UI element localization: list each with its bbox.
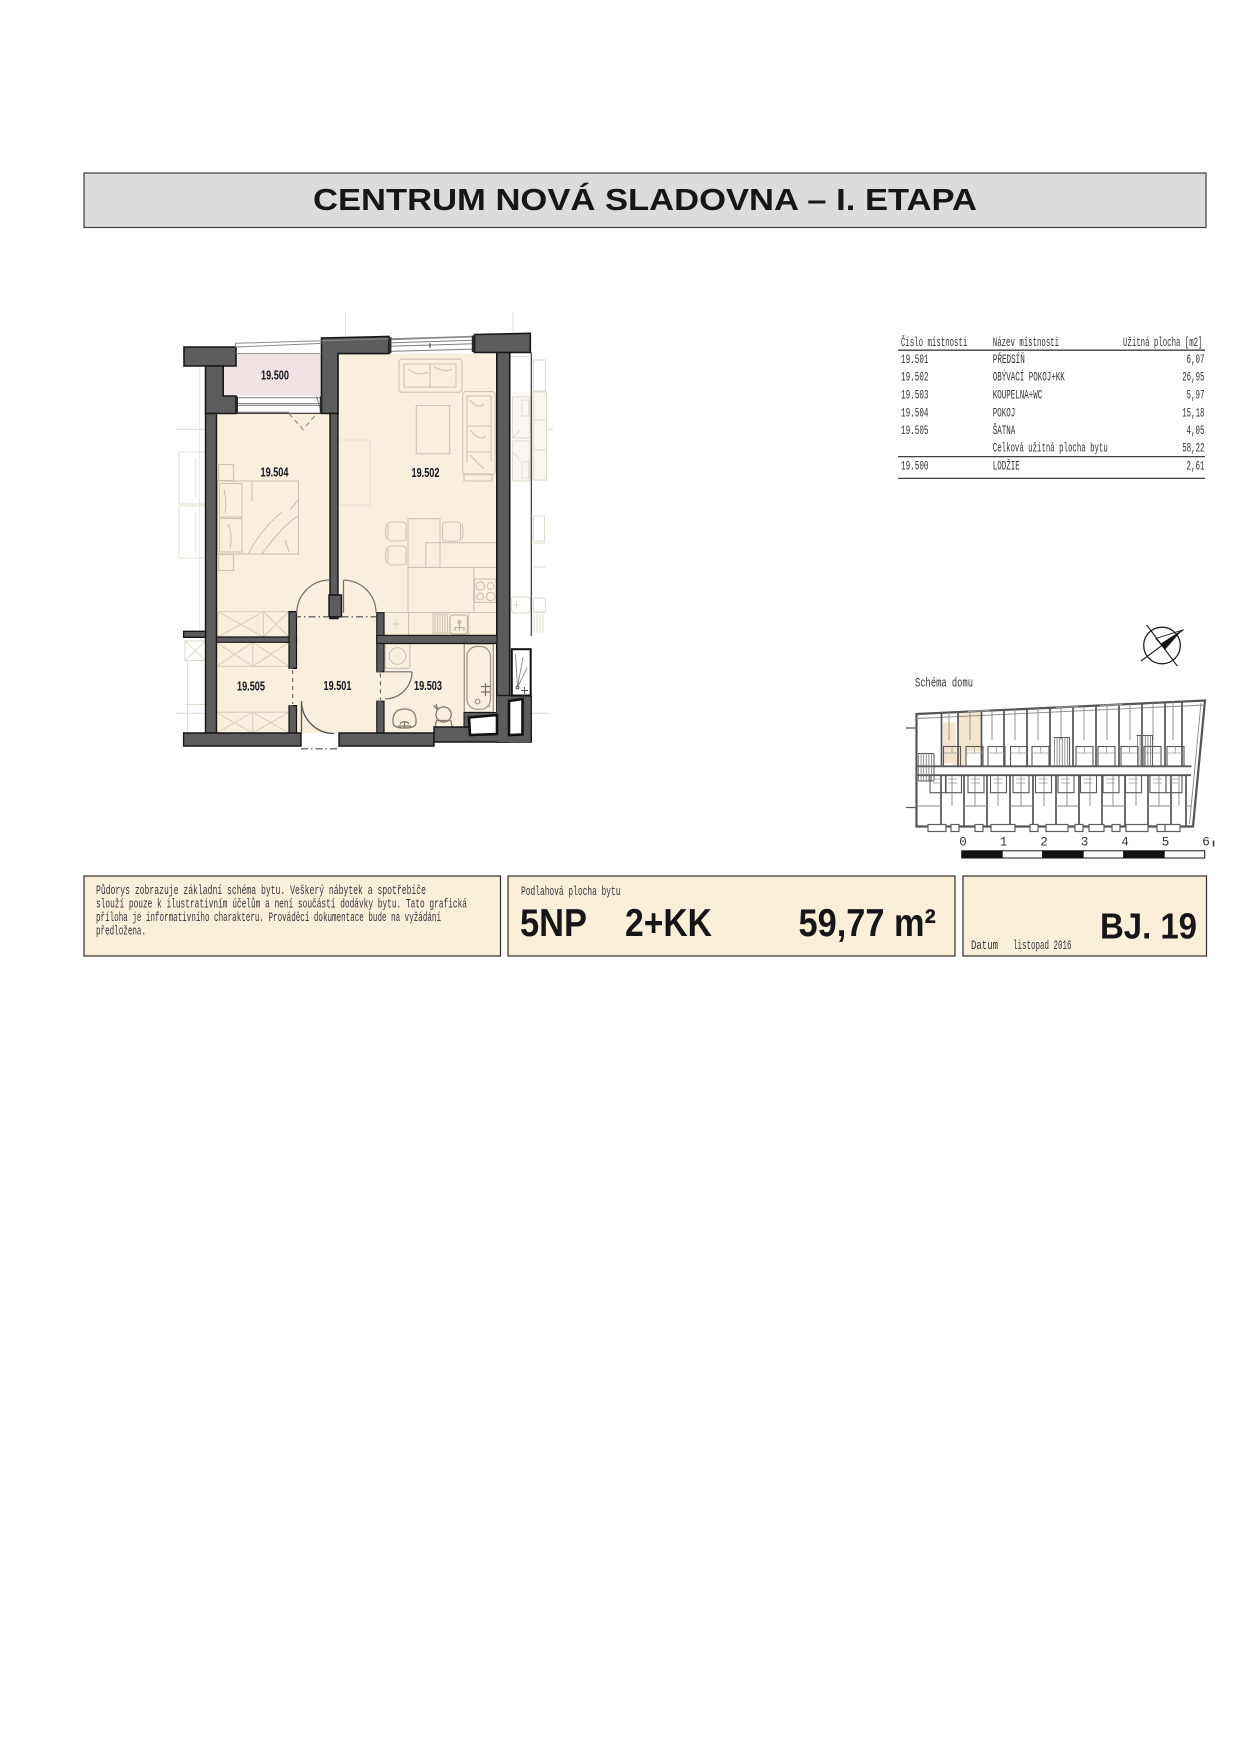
svg-text:4,05: 4,05	[1187, 424, 1205, 438]
svg-text:6: 6	[1202, 836, 1210, 850]
svg-text:19.501: 19.501	[901, 353, 929, 367]
svg-text:19.500: 19.500	[901, 460, 929, 474]
svg-text:Název místnosti: Název místnosti	[993, 336, 1059, 350]
svg-text:PŘEDSÍŇ: PŘEDSÍŇ	[993, 352, 1025, 367]
svg-text:19.502: 19.502	[412, 466, 440, 480]
svg-text:19.505: 19.505	[237, 680, 265, 694]
svg-text:26,95: 26,95	[1182, 371, 1204, 385]
svg-text:15,18: 15,18	[1182, 406, 1204, 420]
svg-text:4: 4	[1121, 836, 1129, 850]
svg-text:19.503: 19.503	[901, 389, 929, 403]
svg-text:Schéma domu: Schéma domu	[915, 677, 973, 691]
svg-text:5: 5	[1162, 836, 1170, 850]
svg-text:5,97: 5,97	[1187, 389, 1205, 403]
svg-text:58,22: 58,22	[1182, 442, 1204, 456]
svg-text:Datum: Datum	[971, 939, 998, 953]
svg-text:Celková užitná plocha bytu: Celková užitná plocha bytu	[993, 442, 1108, 456]
svg-text:KOUPELNA+WC: KOUPELNA+WC	[993, 389, 1043, 403]
svg-text:2+KK: 2+KK	[625, 902, 712, 945]
svg-text:ŠATNA: ŠATNA	[993, 423, 1016, 438]
svg-text:19.501: 19.501	[324, 679, 352, 693]
svg-text:listopad 2016: listopad 2016	[1013, 939, 1072, 953]
svg-text:19.500: 19.500	[261, 369, 289, 383]
svg-text:19.504: 19.504	[901, 406, 929, 420]
svg-text:3: 3	[1081, 836, 1089, 850]
svg-text:Podlahová plocha bytu: Podlahová plocha bytu	[521, 885, 621, 899]
svg-text:59,77 m²: 59,77 m²	[799, 902, 937, 945]
svg-text:0: 0	[959, 836, 967, 850]
svg-text:19.502: 19.502	[901, 371, 929, 385]
svg-text:LODŽIE: LODŽIE	[993, 459, 1020, 474]
svg-text:CENTRUM NOVÁ SLADOVNA – I. ETA: CENTRUM NOVÁ SLADOVNA – I. ETAPA	[313, 182, 977, 217]
svg-text:Číslo místnosti: Číslo místnosti	[901, 335, 967, 350]
svg-text:19.504: 19.504	[261, 466, 289, 480]
svg-text:předložena.: předložena.	[96, 925, 146, 939]
svg-text:Půdorys zobrazuje základní sch: Půdorys zobrazuje základní schéma bytu. …	[96, 884, 426, 898]
svg-text:příloha je informativního char: příloha je informativního charakteru. Pr…	[96, 911, 441, 925]
svg-text:6,07: 6,07	[1187, 353, 1205, 367]
svg-text:BJ. 19: BJ. 19	[1100, 906, 1197, 947]
svg-text:OBÝVACÍ POKOJ+KK: OBÝVACÍ POKOJ+KK	[993, 370, 1065, 385]
svg-text:slouží pouze k ilustrativním ú: slouží pouze k ilustrativním účelům a ne…	[96, 898, 467, 912]
svg-text:5NP: 5NP	[520, 902, 587, 945]
svg-text:19.503: 19.503	[414, 679, 442, 693]
svg-text:2: 2	[1040, 836, 1048, 850]
svg-text:2,61: 2,61	[1187, 460, 1205, 474]
svg-text:19.505: 19.505	[901, 424, 929, 438]
svg-text:Užitná plocha [m2]: Užitná plocha [m2]	[1123, 336, 1203, 350]
svg-text:1: 1	[1000, 836, 1008, 850]
svg-text:POKOJ: POKOJ	[993, 406, 1016, 420]
